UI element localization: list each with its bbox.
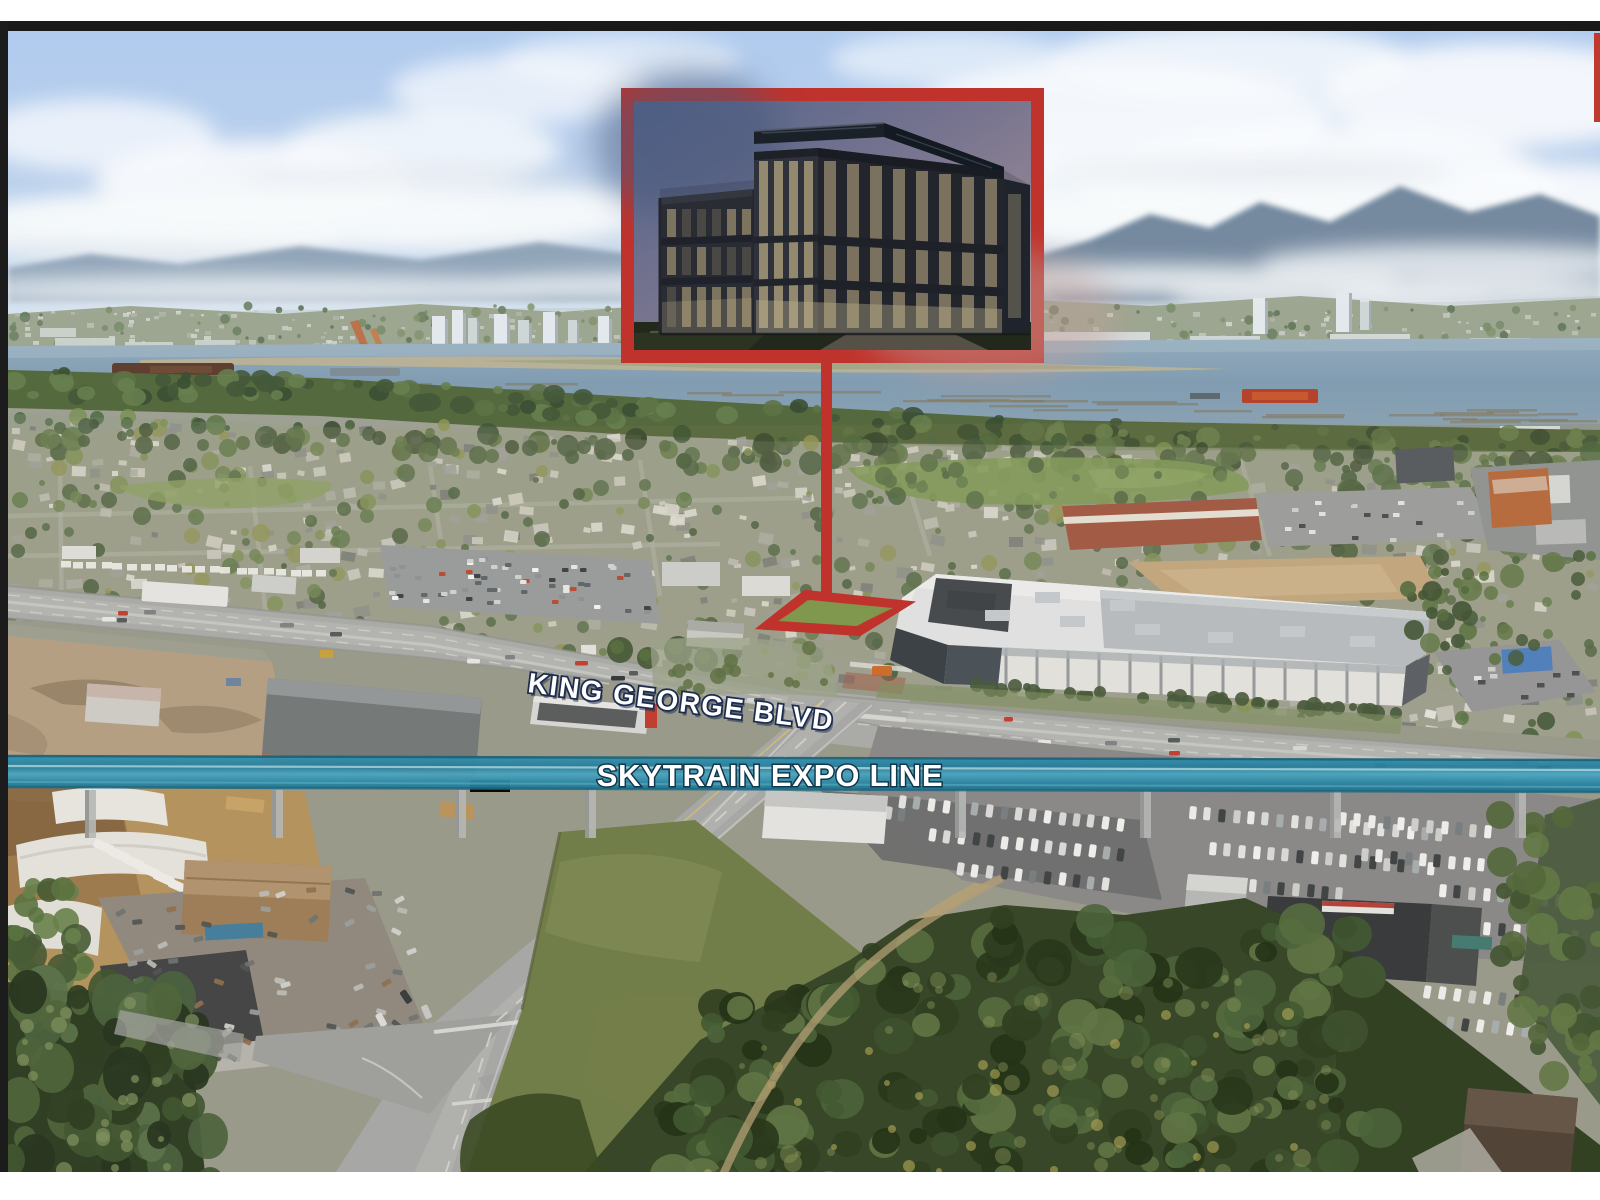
svg-text:SKYTRAIN EXPO LINE: SKYTRAIN EXPO LINE (597, 758, 944, 793)
